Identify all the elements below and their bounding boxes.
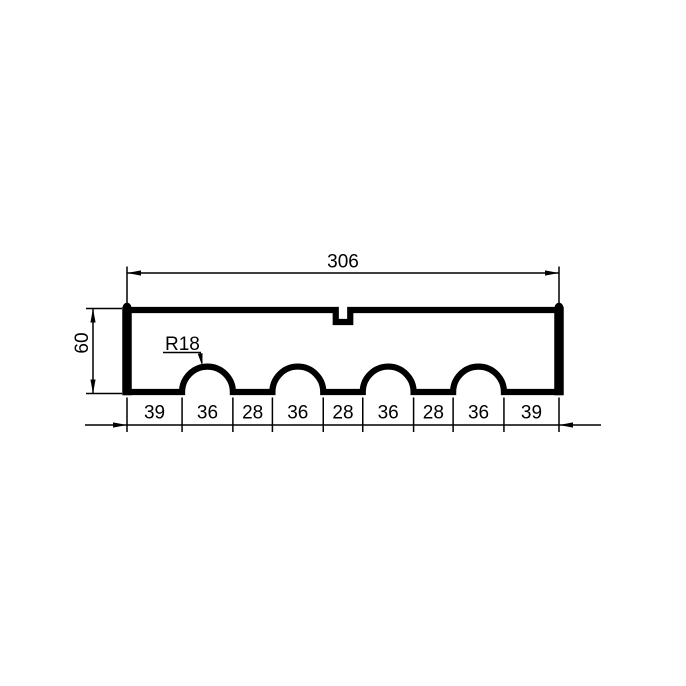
segment-dimension-label: 36 [378,403,399,424]
technical-drawing: 306 60 393628362836283639 R18 [0,0,686,686]
height-dimension-label: 60 [72,332,93,353]
segment-dimension-label: 36 [197,403,218,424]
segment-dimension-label: 36 [468,403,489,424]
corner-dot-right [555,303,563,311]
drawing-background [0,0,686,686]
segment-dimension-label: 28 [423,403,444,424]
corner-dot-left [123,303,131,311]
drawing-page: 306 60 393628362836283639 R18 [0,0,686,686]
segment-dimension-label: 28 [242,403,263,424]
segment-dimension-label: 28 [332,403,353,424]
segment-dimension-label: 39 [144,403,165,424]
width-dimension-label: 306 [327,252,359,273]
segment-dimension-label: 36 [287,403,308,424]
segment-dimension-label: 39 [521,403,542,424]
